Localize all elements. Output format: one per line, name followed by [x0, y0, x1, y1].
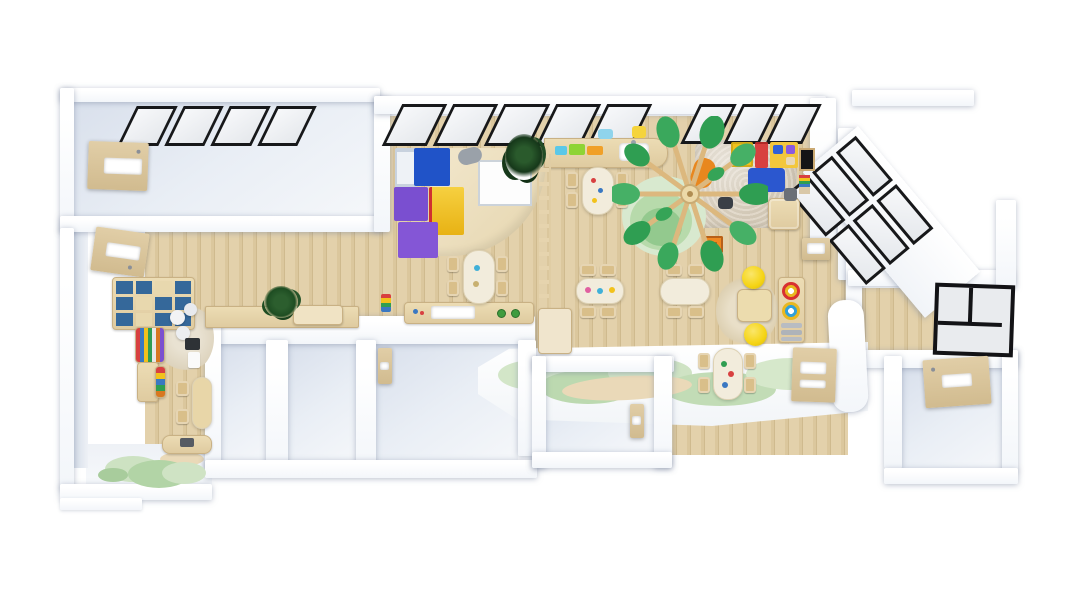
door-handle — [136, 150, 140, 154]
toddler-chair — [698, 377, 710, 393]
door-sign — [632, 416, 641, 425]
toddler-chair — [176, 381, 189, 396]
activity-table-oval — [576, 278, 624, 304]
table-toy — [591, 178, 596, 183]
toddler-chair — [744, 353, 756, 369]
pouf — [184, 303, 197, 316]
wall — [60, 498, 142, 510]
door-sign — [941, 373, 972, 388]
glass-partition — [933, 283, 1015, 358]
cubby-bin — [175, 281, 192, 294]
table-toy — [597, 288, 603, 294]
partition-mullion — [968, 288, 973, 324]
table-toy — [592, 198, 597, 203]
reading-room-door — [90, 226, 150, 277]
table-toy — [722, 382, 728, 388]
toddler-chair — [566, 192, 578, 208]
yellow-stool — [744, 323, 767, 346]
paper-sheet — [188, 352, 200, 368]
cubby-bin — [116, 281, 133, 294]
corridor-skylights — [117, 106, 317, 146]
washroom-2-floor — [288, 344, 356, 464]
activity-table-pill — [463, 250, 495, 304]
table-toy — [474, 265, 480, 271]
mat-square-blue — [773, 145, 783, 154]
wall — [205, 460, 537, 478]
wall-chalkboard — [799, 148, 815, 171]
west-wall-face — [74, 228, 88, 468]
activity-table-pill — [582, 167, 614, 215]
wall-hatch-panel — [802, 238, 830, 260]
rainbow-stacker — [782, 282, 800, 300]
cubby-bin — [136, 281, 153, 294]
door-handle — [128, 265, 133, 270]
wall — [532, 452, 672, 468]
toddler-chair — [688, 306, 704, 318]
table-toy — [721, 361, 727, 367]
tray-orange — [587, 146, 603, 155]
pouf — [170, 310, 185, 325]
toddler-chair — [580, 306, 596, 318]
washroom-1-floor — [221, 344, 268, 464]
toddler-chair — [496, 280, 508, 296]
book-display-rack — [135, 327, 165, 363]
soap-knob-green — [511, 309, 520, 318]
toy-figure — [784, 188, 797, 201]
tall-cabinet — [538, 308, 572, 354]
bench-toy — [180, 438, 194, 447]
sink-basin — [431, 306, 475, 319]
toddler-chair — [447, 280, 459, 296]
tray-green — [569, 144, 585, 155]
south-sink-counter — [404, 302, 534, 324]
toddler-chair — [447, 256, 459, 272]
lilypad-rug — [162, 462, 206, 484]
floorplan-canvas — [0, 0, 1080, 608]
toy-camera — [185, 338, 200, 350]
panel-opening — [800, 380, 826, 389]
activity-table-oval — [660, 278, 710, 305]
wall — [266, 340, 288, 470]
door-sign — [104, 158, 143, 175]
panel-opening — [800, 362, 826, 375]
counter-toy — [413, 309, 418, 314]
rainbow-stacker — [782, 302, 800, 320]
wall — [60, 88, 380, 102]
play-mat-frame — [770, 142, 798, 168]
cubby-bin — [155, 313, 172, 326]
toddler-chair — [600, 306, 616, 318]
table-toy — [728, 371, 734, 377]
wall — [356, 340, 376, 470]
toddler-chair — [176, 409, 189, 424]
cubby-bin — [136, 297, 153, 310]
gray-bin — [781, 323, 802, 328]
washroom-3-door-panel — [378, 348, 392, 384]
cubby-bin — [136, 313, 153, 326]
door-sign — [105, 242, 141, 261]
partition-mullion — [938, 321, 1002, 327]
wall — [1002, 350, 1018, 472]
wall — [532, 356, 674, 372]
play-tree — [612, 116, 768, 272]
activity-table-pill — [713, 348, 743, 400]
wall — [60, 88, 74, 232]
table-toy — [598, 188, 603, 193]
mat-square-bear — [786, 157, 795, 165]
wall — [374, 96, 390, 232]
cubby-bin — [155, 297, 172, 310]
hanging-ladder-divider — [537, 154, 551, 310]
square-wood-cabinet — [768, 198, 800, 230]
counter-toy — [420, 311, 424, 315]
wall-rainbow-toy — [381, 294, 391, 312]
gray-bin — [781, 337, 802, 341]
wall — [60, 228, 74, 490]
reading-table — [192, 377, 212, 429]
hatch-window — [807, 243, 825, 254]
wall-item-cyan — [598, 129, 613, 139]
beige-box — [293, 305, 343, 325]
door-handle — [931, 368, 935, 372]
door-sign — [380, 362, 389, 370]
table-toy — [473, 281, 479, 287]
lilypad-rug — [98, 468, 128, 482]
washroom-4-door-panel — [630, 404, 644, 438]
table-toy — [585, 287, 591, 293]
book-strip — [155, 366, 166, 398]
toddler-chair — [666, 306, 682, 318]
rainbow-stacker-shelf — [778, 277, 805, 343]
table-toy — [609, 287, 615, 293]
toddler-chair — [566, 172, 578, 188]
wall — [884, 356, 902, 468]
cubby-bin — [116, 297, 133, 310]
mat-square-purple — [786, 145, 795, 154]
wall — [852, 90, 974, 106]
toddler-chair — [744, 377, 756, 393]
south-wall-panel — [791, 347, 837, 403]
potted-plant-dark — [505, 134, 543, 180]
wall — [884, 468, 1018, 484]
soap-knob-green — [497, 309, 506, 318]
wall — [996, 200, 1016, 288]
toddler-chair — [580, 264, 596, 276]
potted-plant — [264, 286, 298, 318]
tray-cyan — [555, 146, 567, 155]
play-cube-blue — [414, 148, 450, 186]
cubby-bin — [116, 313, 133, 326]
entry-room-door — [922, 356, 991, 408]
wall-activity-panel — [799, 175, 810, 194]
toddler-chair — [496, 256, 508, 272]
play-cube-purple — [394, 187, 428, 221]
play-cube-purple — [398, 222, 438, 258]
square-play-table — [737, 289, 772, 322]
corridor-door — [87, 141, 149, 191]
gray-bin — [781, 330, 802, 335]
cubby-bin — [155, 281, 172, 294]
toddler-chair — [698, 353, 710, 369]
